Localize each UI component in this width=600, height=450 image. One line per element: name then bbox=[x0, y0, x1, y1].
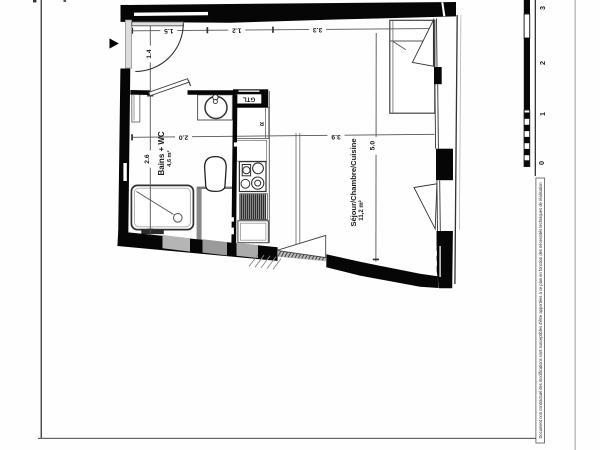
svg-text:3.3: 3.3 bbox=[313, 26, 323, 33]
svg-text:3.9: 3.9 bbox=[331, 133, 341, 140]
svg-text:2.6: 2.6 bbox=[144, 154, 151, 164]
svg-text:Document non contractuel des m: Document non contractuel des modificatio… bbox=[538, 182, 543, 439]
svg-text:GTL: GTL bbox=[243, 95, 256, 102]
svg-text:11,2 m²: 11,2 m² bbox=[358, 200, 365, 220]
svg-text:Bains + WC: Bains + WC bbox=[157, 131, 166, 175]
svg-text:R: R bbox=[260, 120, 264, 126]
svg-text:1.5: 1.5 bbox=[164, 27, 174, 34]
svg-text:2: 2 bbox=[538, 61, 547, 65]
svg-text:2.0: 2.0 bbox=[179, 134, 189, 141]
svg-text:0: 0 bbox=[537, 161, 546, 165]
svg-text:5.0: 5.0 bbox=[369, 141, 376, 151]
svg-text:4,6 m²: 4,6 m² bbox=[166, 150, 173, 167]
svg-text:1.2: 1.2 bbox=[232, 27, 242, 34]
svg-text:1: 1 bbox=[538, 112, 547, 116]
svg-text:3: 3 bbox=[538, 6, 547, 10]
svg-text:1.4: 1.4 bbox=[146, 49, 153, 59]
svg-text:Séjour/Chambre/Cuisine: Séjour/Chambre/Cuisine bbox=[349, 138, 358, 226]
